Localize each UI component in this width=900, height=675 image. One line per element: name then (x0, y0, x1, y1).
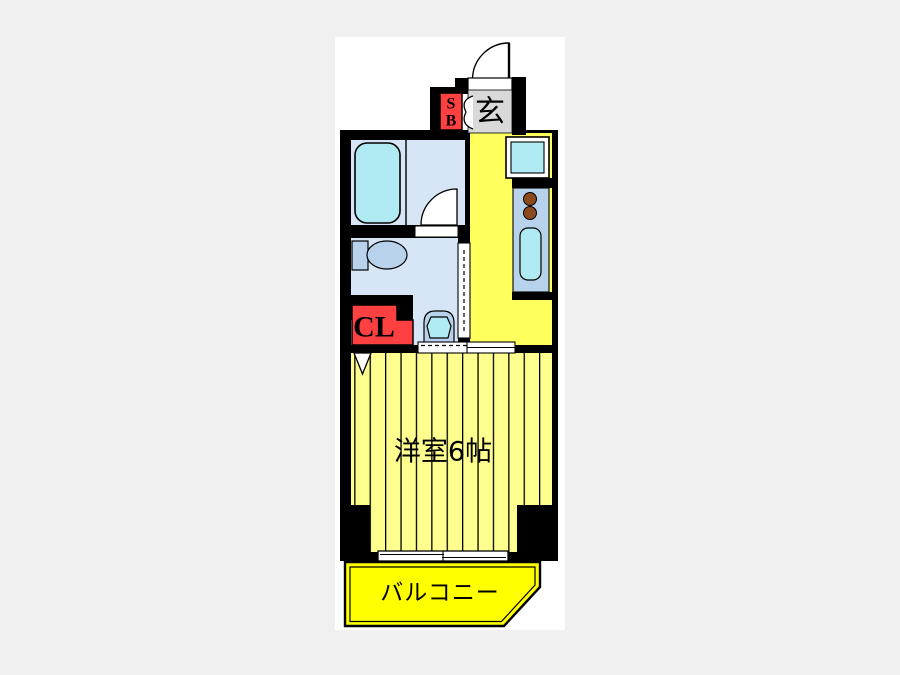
floor-plan-image: 玄 S B CL 洋室6帖 バルコニー (0, 0, 900, 675)
counter-sink (520, 228, 541, 280)
bathroom-door-sill (415, 226, 458, 237)
kitchen-counter-wall-top (512, 178, 552, 188)
entrance-right-wall (512, 77, 526, 135)
main-room-floor-upper (351, 353, 552, 505)
stove-burner-1 (524, 193, 537, 206)
shoe-box-label-s: S (447, 96, 456, 113)
washbasin-bowl (427, 317, 451, 338)
main-room-floor-lower (370, 505, 517, 552)
main-room-label: 洋室6帖 (394, 437, 492, 468)
shoe-box-folding-door-icon (464, 96, 473, 129)
toilet-tank (352, 241, 368, 270)
toilet-bowl (367, 241, 407, 269)
floor-plan-page: 玄 S B CL 洋室6帖 バルコニー (0, 0, 900, 675)
stove-burner-2 (524, 207, 537, 220)
balcony-label: バルコニー (380, 580, 500, 606)
kitchen-sink (511, 142, 544, 173)
entrance-sill-left-post (455, 78, 468, 94)
bathtub (355, 143, 400, 223)
kitchen-counter-wall-bottom (512, 292, 552, 300)
closet-label: CL (353, 311, 395, 344)
entrance-label: 玄 (475, 95, 505, 130)
shoe-box-label-b: B (446, 113, 457, 130)
